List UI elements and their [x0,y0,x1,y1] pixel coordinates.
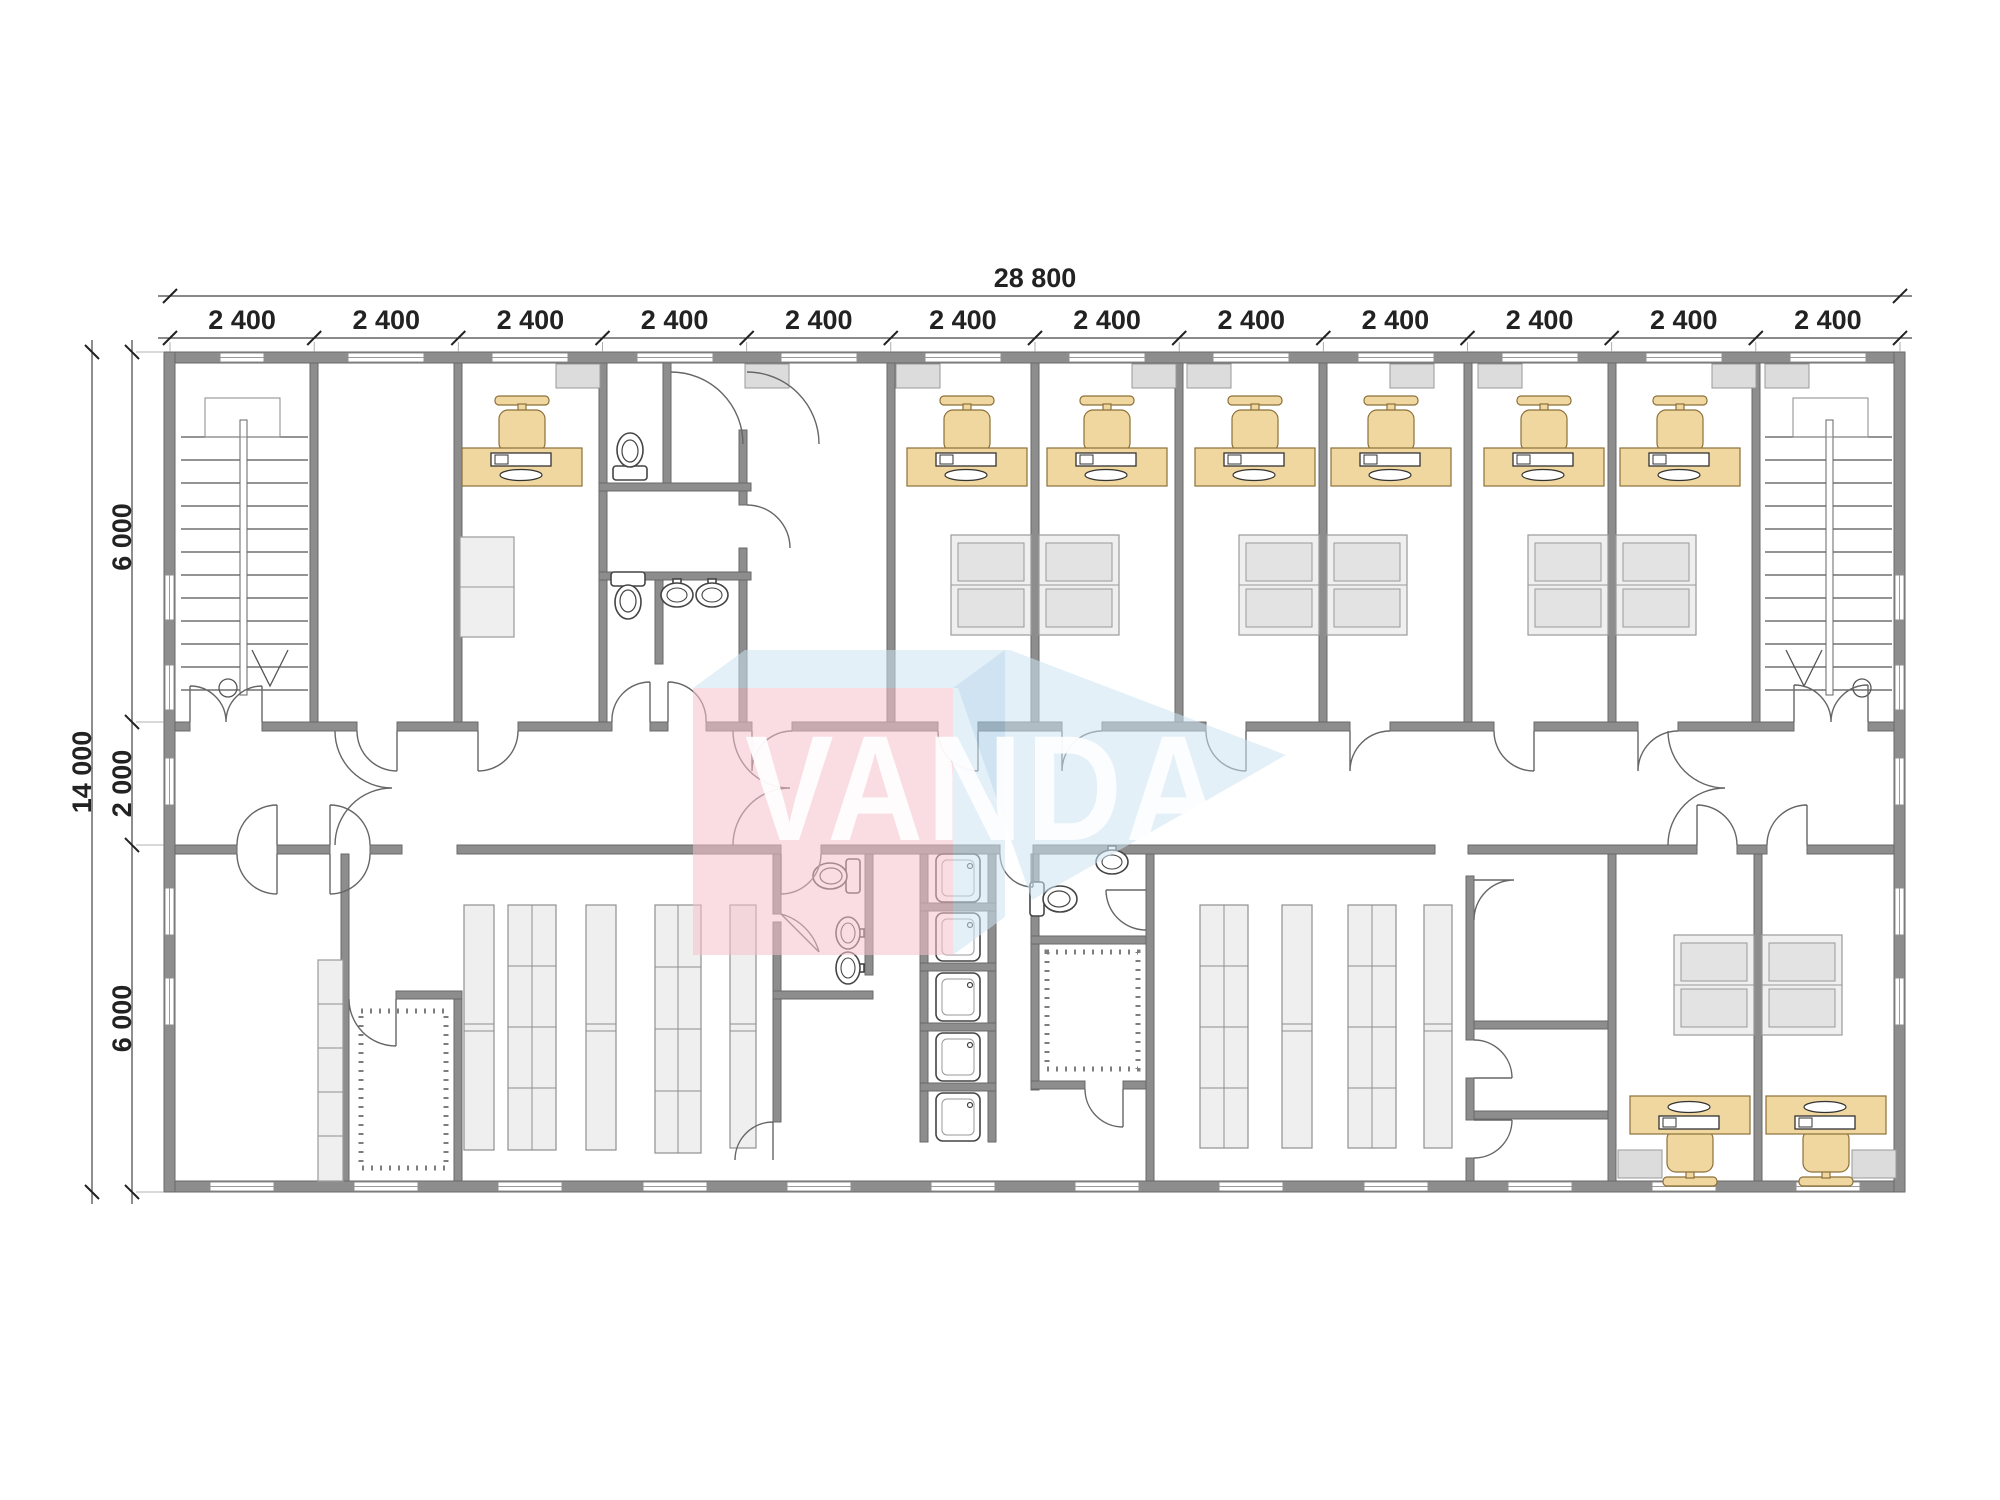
dimension-label: 2 400 [1217,305,1285,335]
dimension-label: 2 400 [352,305,420,335]
stair-direction-arrow [252,650,288,686]
wall-box [1478,364,1522,388]
wall-box [556,364,600,388]
top-offices-furniture [460,396,1740,637]
dimension-label: 6 000 [107,985,137,1053]
dimension-label: 14 000 [67,731,97,814]
wall-box [1765,364,1809,388]
dimension-label: 2 400 [1794,305,1862,335]
dimension-label: 6 000 [107,503,137,571]
sauna-room-lining [1047,952,1138,1069]
wall-box [745,364,789,388]
watermark-text: VANDA [745,704,1225,872]
wall-box [896,364,940,388]
dimension-label: 2 400 [1362,305,1430,335]
floor-plan-svg: VANDA 28 8002 4002 4002 4002 4002 4002 4… [0,0,2000,1500]
stair-direction-arrow [1786,650,1822,686]
wall-box [1390,364,1434,388]
tall-cabinet-strip [318,960,343,1181]
dimension-label: 28 800 [994,263,1077,293]
dimension-label: 2 400 [1506,305,1574,335]
dimension-label: 2 400 [785,305,853,335]
cabinet-low [1618,1150,1662,1178]
cabinet-low [1852,1150,1896,1178]
dimension-lines-top: 28 8002 4002 4002 4002 4002 4002 4002 40… [158,263,1912,352]
wall-box [1187,364,1231,388]
dimension-label: 2 000 [107,750,137,818]
dimension-label: 2 400 [641,305,709,335]
stair-stringer [1826,420,1833,695]
floorplan-sheet: VANDA 28 8002 4002 4002 4002 4002 4002 4… [0,0,2000,1500]
wall-box [1132,364,1176,388]
stairwell-right [1765,398,1892,697]
wall-box [1712,364,1756,388]
stair-start-marker [219,679,237,697]
dimension-label: 2 400 [208,305,276,335]
stairwell-left [181,398,308,697]
dimension-label: 2 400 [497,305,565,335]
insulated-room-lining [361,1011,446,1168]
stair-stringer [240,420,247,695]
dimension-lines-left: 14 0006 0002 0006 000 [67,340,164,1204]
dimension-label: 2 400 [929,305,997,335]
dimension-label: 2 400 [1073,305,1141,335]
dimension-label: 2 400 [1650,305,1718,335]
